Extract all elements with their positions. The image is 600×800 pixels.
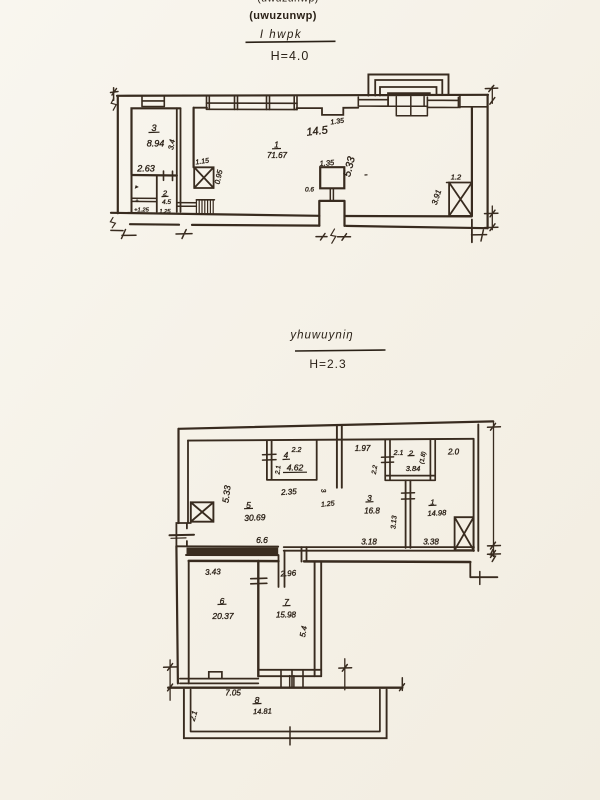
svg-text:8.94: 8.94 [147,139,165,149]
svg-text:4: 4 [284,451,289,460]
svg-text:1.35: 1.35 [319,158,335,168]
svg-text:4.5: 4.5 [162,199,171,206]
svg-text:1.2: 1.2 [451,173,462,182]
svg-text:3.38: 3.38 [423,538,439,547]
svg-text:3.18: 3.18 [361,538,377,547]
svg-text:2.0: 2.0 [447,448,460,457]
svg-text:1.25: 1.25 [159,209,171,215]
svg-text:71.67: 71.67 [267,151,288,160]
svg-text:30.69: 30.69 [244,512,266,523]
svg-text:2.35: 2.35 [280,487,298,497]
svg-text:20.37: 20.37 [211,611,234,621]
svg-text:(uwuzunwp): (uwuzunwp) [257,0,319,5]
svg-text:14.81: 14.81 [253,706,272,716]
svg-text:2.63: 2.63 [136,164,155,174]
svg-text:6.6: 6.6 [256,535,268,545]
svg-text:2.1: 2.1 [274,465,282,476]
svg-text:2.2: 2.2 [291,447,302,454]
svg-text:15.98: 15.98 [276,611,297,620]
svg-text:3.4: 3.4 [166,139,177,151]
svg-text:H=2.3: H=2.3 [309,357,346,371]
svg-text:4.62: 4.62 [287,463,304,473]
svg-text:3.84: 3.84 [406,464,421,473]
svg-text:+1.25: +1.25 [134,208,149,214]
svg-text:H=4.0: H=4.0 [271,49,310,63]
svg-text:16.8: 16.8 [364,507,380,516]
svg-text:I hwpk: I hwpk [260,29,302,41]
svg-text:2.1: 2.1 [393,450,404,457]
svg-text:5.33: 5.33 [220,485,232,504]
svg-text:3.43: 3.43 [205,567,222,577]
svg-text:1.25: 1.25 [321,500,335,508]
svg-text:7.05: 7.05 [225,689,241,698]
svg-text:0.6: 0.6 [305,187,314,194]
svg-text:2.96: 2.96 [279,568,297,578]
svg-text:(uwuzunwp): (uwuzunwp) [249,10,317,22]
svg-text:3: 3 [151,123,156,133]
svg-text:yhuwuyniŋ: yhuwuyniŋ [289,330,353,342]
svg-text:1.97: 1.97 [355,444,371,453]
svg-text:14.98: 14.98 [427,508,447,518]
svg-text:3.13: 3.13 [390,515,398,529]
